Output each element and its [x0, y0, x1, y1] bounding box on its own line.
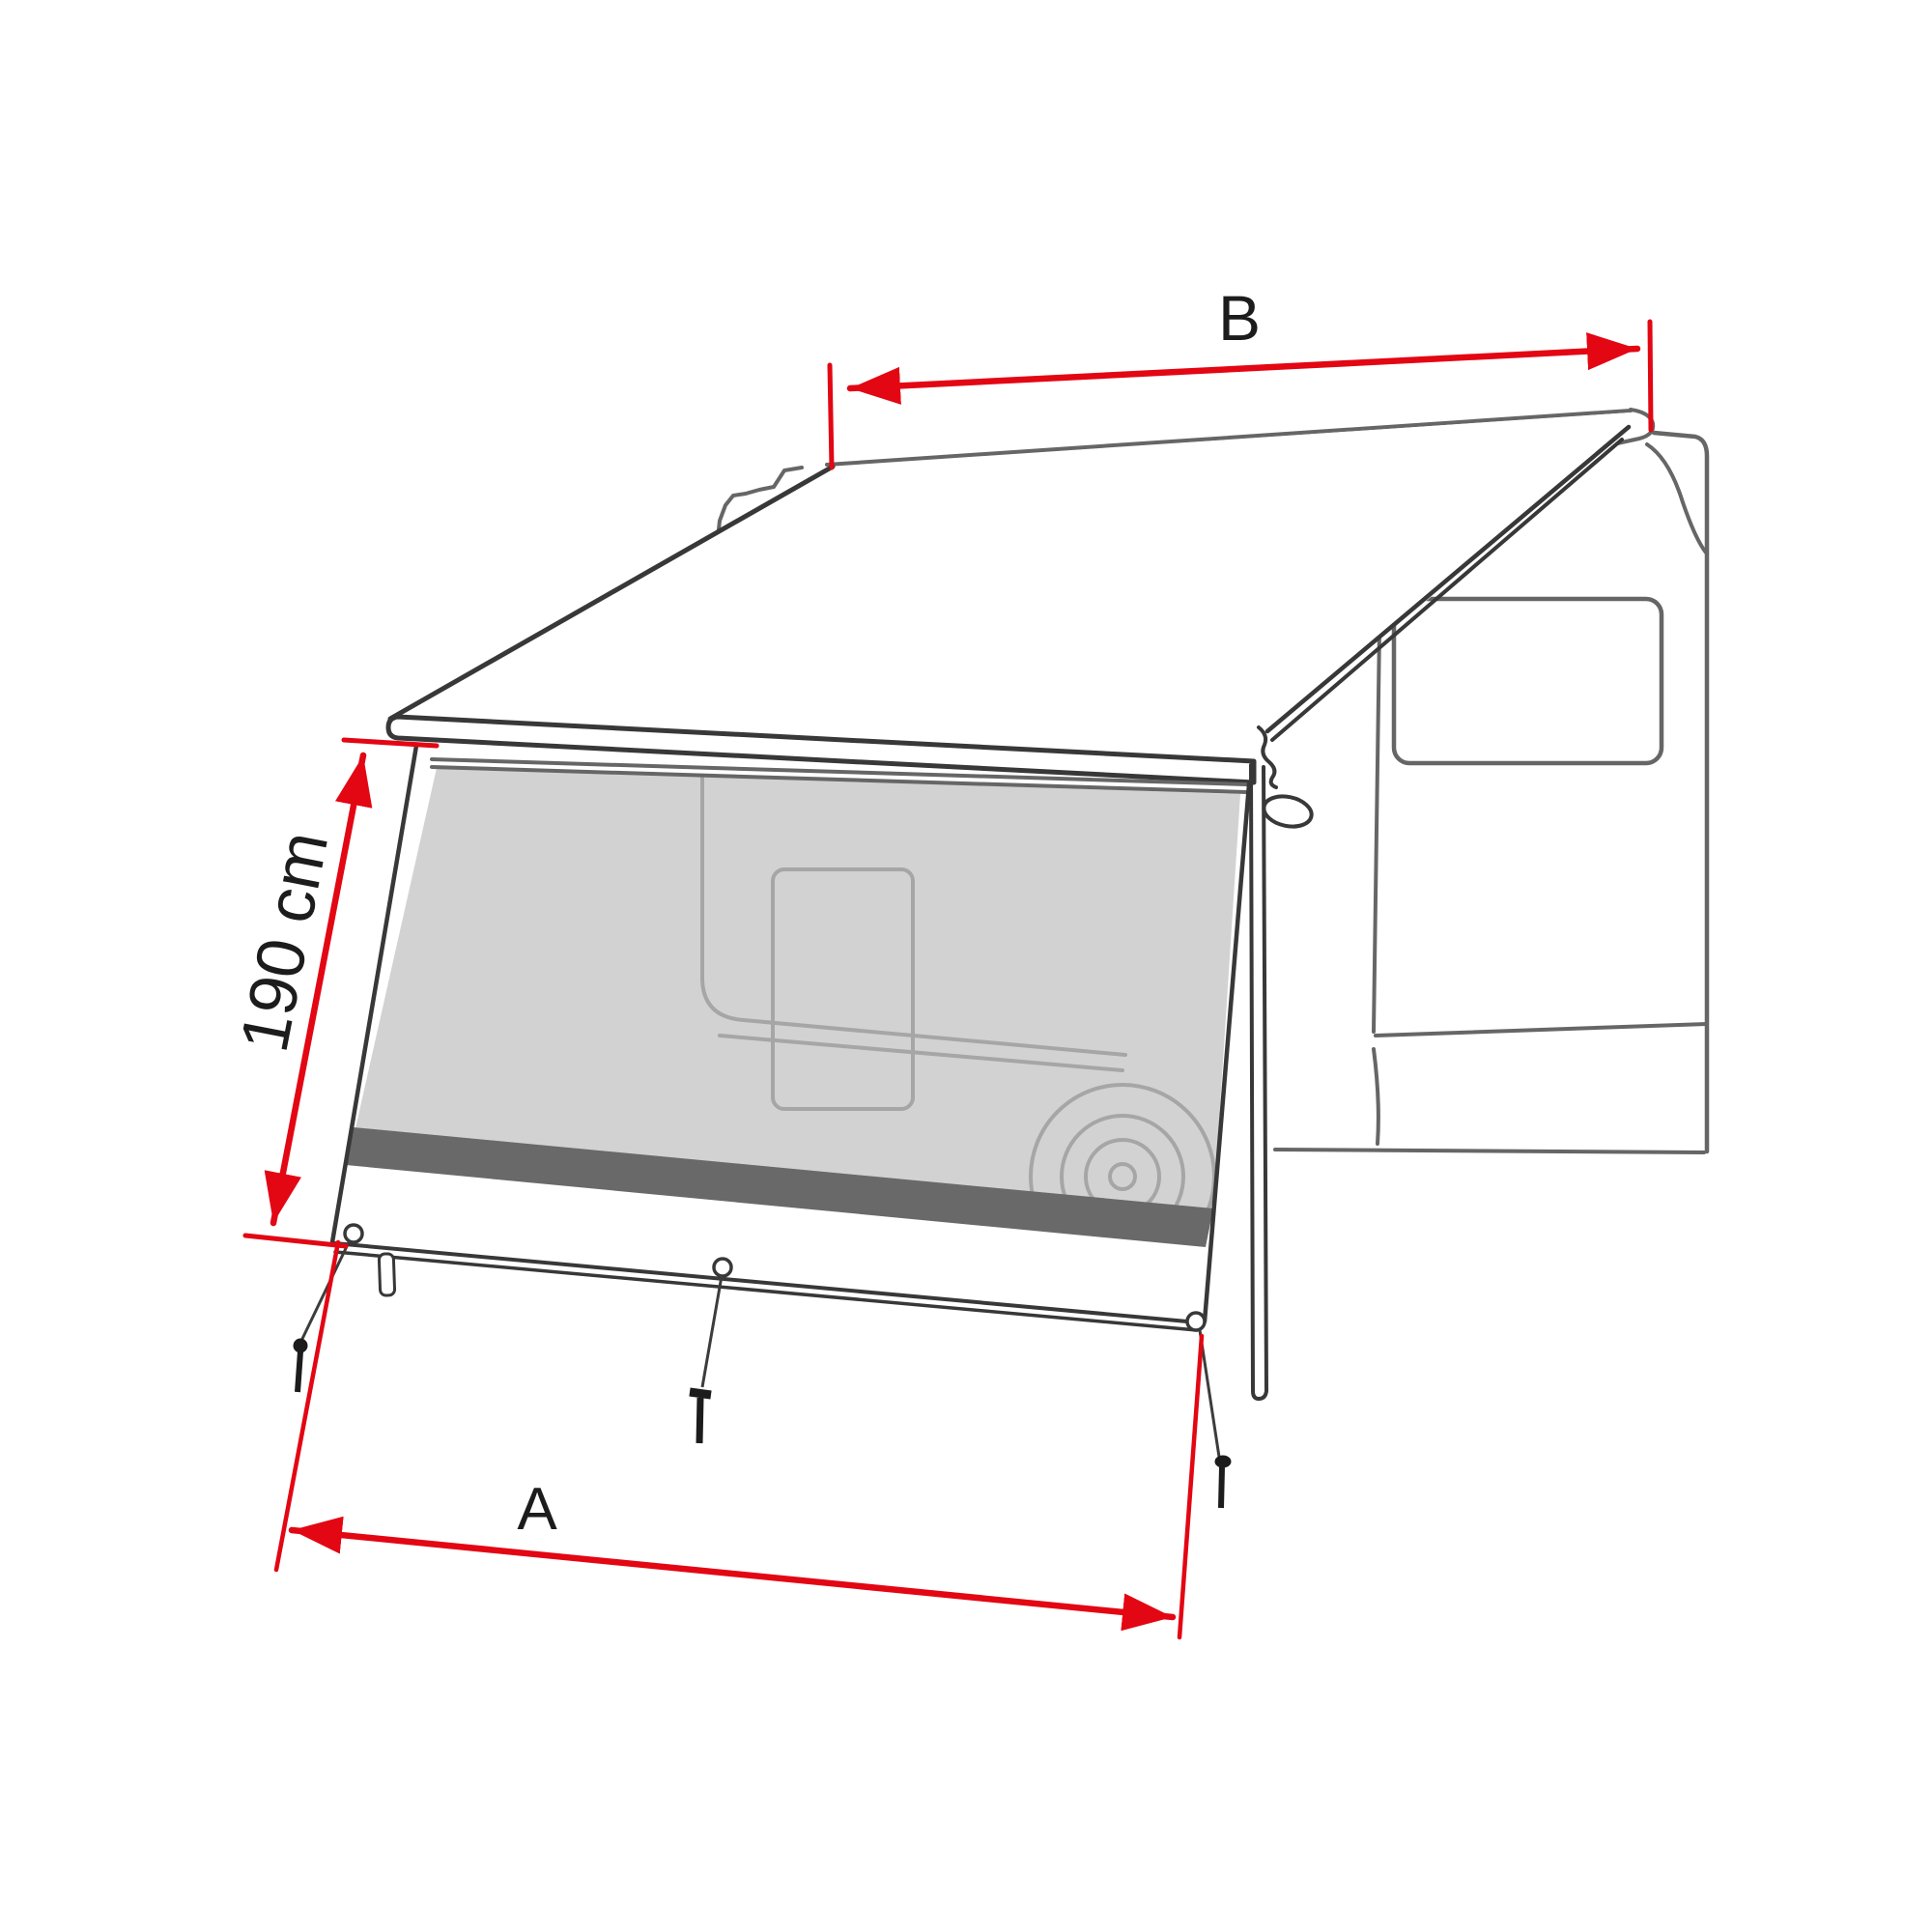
van-wall-curve: [1647, 444, 1706, 553]
tent-peg-icon-middle: [690, 1392, 711, 1443]
dimension-b-label: B: [1218, 282, 1261, 354]
grommet-right: [1187, 1313, 1205, 1330]
awning-dimension-diagram: B 190 cm A: [0, 0, 1932, 1932]
dimension-b-tick-left: [830, 365, 832, 468]
crank-ring-icon: [1261, 792, 1314, 831]
dimension-b-tick-right: [1650, 322, 1651, 430]
tent-peg-icon-left: [294, 1339, 307, 1392]
dimension-a-extension-right: [1179, 1336, 1202, 1637]
van-door-bottom-curve: [1374, 1049, 1378, 1144]
support-leg-right-line: [1259, 767, 1266, 1399]
dimension-a-label: A: [517, 1476, 557, 1543]
tie-cord-left: [300, 1240, 350, 1343]
van-sill-line: [1376, 1024, 1707, 1036]
diagram-page: B 190 cm A: [0, 0, 1932, 1932]
van-door-edge: [1374, 630, 1379, 1032]
support-leg-left-line: [1251, 765, 1259, 1399]
dimension-b-arrow: [850, 349, 1637, 388]
tie-cord-middle: [702, 1276, 722, 1387]
front-panel: [294, 746, 1249, 1508]
grommet-middle: [714, 1259, 731, 1276]
hem-strap-tab: [379, 1254, 394, 1295]
dimension-a-arrow: [292, 1530, 1173, 1617]
van-bottom-line: [1275, 1150, 1704, 1152]
grommet-left: [345, 1225, 362, 1242]
tent-peg-icon-right: [1215, 1456, 1231, 1508]
awning-support-leg: [1251, 765, 1315, 1399]
dimension-a-extension-left: [276, 1242, 338, 1570]
van-window: [1394, 599, 1662, 763]
